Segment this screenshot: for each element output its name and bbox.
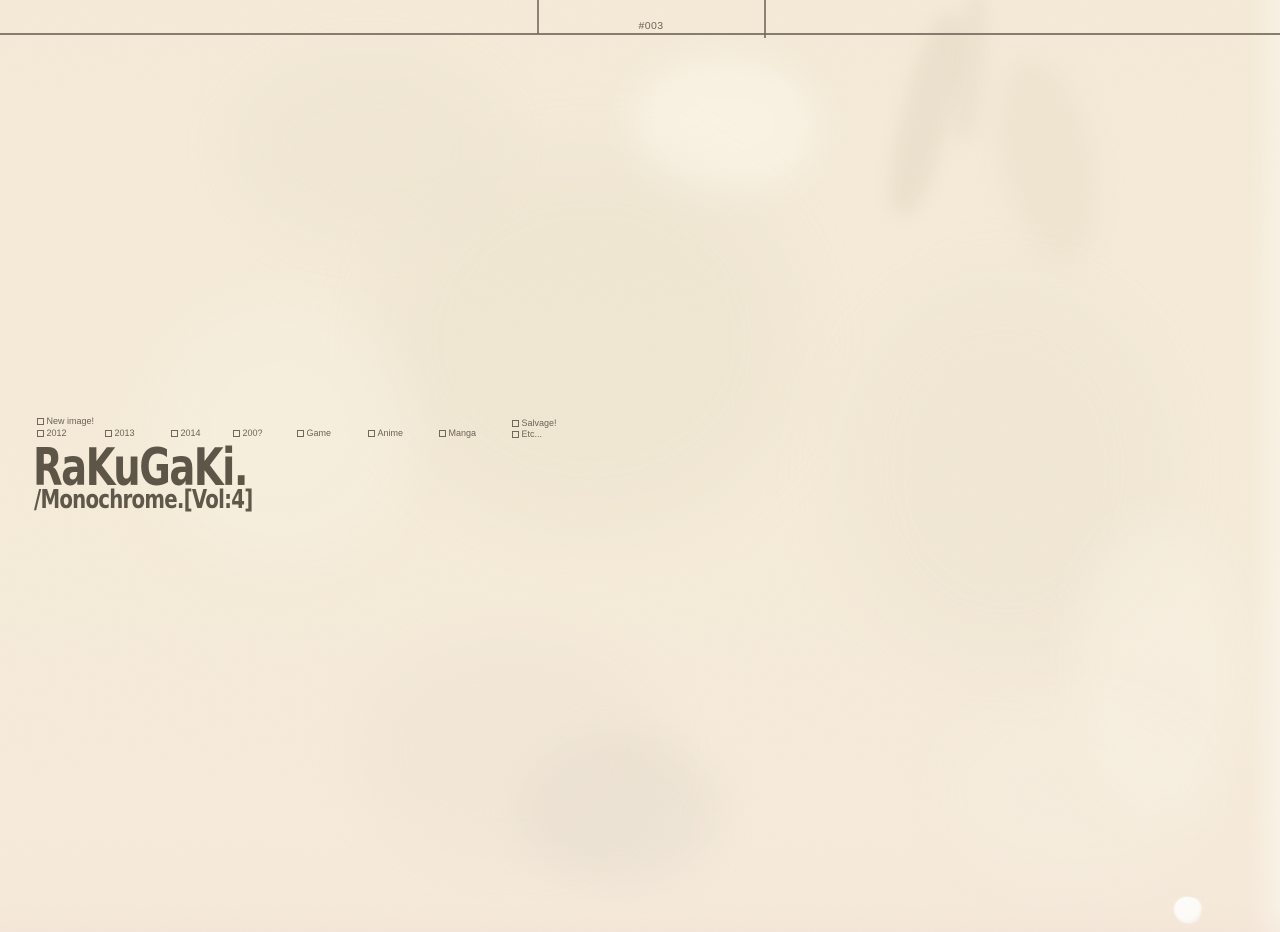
checkbox-icon xyxy=(105,430,112,437)
ghost-artwork-showthrough xyxy=(380,150,800,530)
ghost-artwork-showthrough xyxy=(979,47,1116,272)
filter-label: 2013 xyxy=(115,429,135,438)
filter-2012: 2012 xyxy=(37,429,67,438)
header-horizontal-rule xyxy=(0,33,1280,35)
filter-200x: 200? xyxy=(233,429,263,438)
filter-label: Manga xyxy=(449,429,477,438)
ghost-artwork-showthrough xyxy=(235,55,505,240)
ghost-artwork-showthrough xyxy=(947,0,993,143)
filter-label: 200? xyxy=(243,429,263,438)
filter-label: Etc... xyxy=(522,430,543,439)
filter-game: Game xyxy=(297,429,331,438)
checkbox-icon xyxy=(439,430,446,437)
filter-label: 2014 xyxy=(181,429,201,438)
ghost-artwork-showthrough xyxy=(520,735,720,885)
filter-2013: 2013 xyxy=(105,429,135,438)
ghost-artwork-showthrough xyxy=(840,280,1170,660)
checkbox-icon xyxy=(512,420,519,427)
filter-label: 2012 xyxy=(47,429,67,438)
checkbox-icon xyxy=(512,431,519,438)
filter-anime: Anime xyxy=(368,429,403,438)
paper-blemish xyxy=(1172,895,1203,925)
ghost-artwork-showthrough xyxy=(879,9,973,219)
page-edge-shading xyxy=(0,906,1280,932)
header-vertical-rule-right xyxy=(764,0,766,38)
filter-manga: Manga xyxy=(439,429,476,438)
checkbox-icon xyxy=(37,418,44,425)
checkbox-icon xyxy=(37,430,44,437)
page-number: #003 xyxy=(537,20,765,32)
filter-label: Anime xyxy=(378,429,404,438)
filter-label: New image! xyxy=(47,417,95,426)
scanned-artbook-page: #003 New image! Salvage! 2012 2013 2014 … xyxy=(0,0,1280,932)
filter-2014: 2014 xyxy=(171,429,201,438)
checkbox-icon xyxy=(297,430,304,437)
checkbox-icon xyxy=(233,430,240,437)
filter-salvage: Salvage! xyxy=(512,419,557,428)
ghost-artwork-showthrough xyxy=(1075,520,1245,820)
ghost-artwork-showthrough xyxy=(945,700,1215,885)
page-edge-highlight xyxy=(1250,0,1280,932)
ghost-artwork-showthrough xyxy=(630,55,820,195)
page-subtitle: /Monochrome.[Vol:4] xyxy=(34,487,253,513)
checkbox-icon xyxy=(171,430,178,437)
filter-label: Game xyxy=(307,429,332,438)
filter-etc: Etc... xyxy=(512,430,542,439)
filter-new-image: New image! xyxy=(37,417,94,426)
filter-label: Salvage! xyxy=(522,419,557,428)
checkbox-icon xyxy=(368,430,375,437)
ghost-artwork-showthrough xyxy=(360,640,660,860)
